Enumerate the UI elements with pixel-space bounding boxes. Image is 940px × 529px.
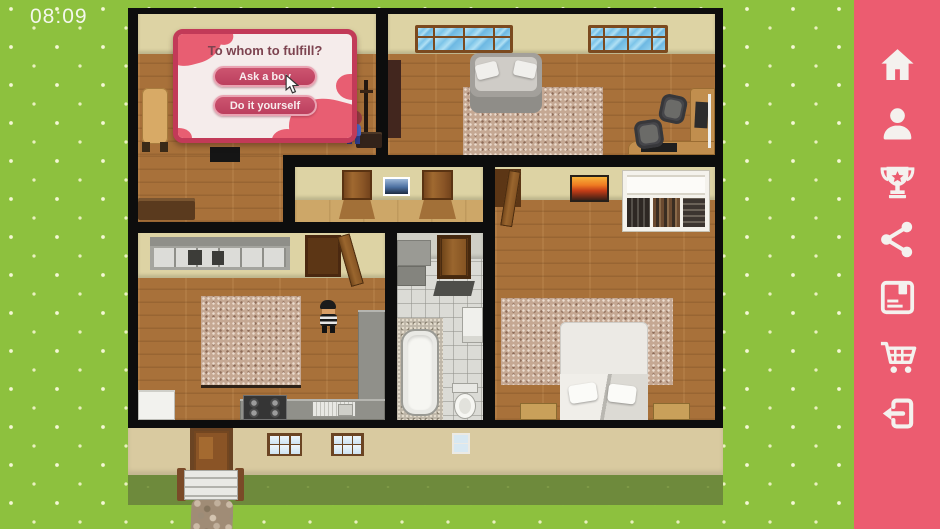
dialog-blob (336, 74, 357, 100)
bathroom-door (441, 238, 467, 276)
wardrobe-shelf (627, 175, 705, 195)
stone-path (190, 498, 233, 529)
living-room-window (415, 25, 513, 53)
profile-button[interactable] (875, 102, 919, 145)
mouse-cursor (284, 74, 300, 94)
nightstand (520, 403, 557, 420)
bed-pillow (607, 383, 637, 404)
front-door-panel (199, 437, 213, 459)
character-boy[interactable] (316, 300, 340, 338)
study-room-lower (138, 155, 283, 222)
facade-window (267, 433, 302, 456)
save-button[interactable] (875, 276, 919, 319)
exit-button[interactable] (875, 392, 919, 435)
study-desk-leg (160, 142, 168, 152)
boy-hat (320, 300, 336, 309)
game-timer: 08:09 (30, 5, 88, 29)
coat-rack-arm (360, 90, 373, 93)
do-it-yourself-button[interactable]: Do it yourself (213, 95, 317, 116)
dialog-title: To whom to fulfill? (208, 43, 323, 58)
save-icon (877, 277, 918, 318)
wardrobe (622, 170, 710, 232)
kitchen-sink (312, 401, 356, 417)
kitchen-rug (201, 296, 301, 388)
exit-icon (877, 393, 918, 434)
kitchen-door-opening (305, 235, 341, 277)
toilet-tank (452, 383, 478, 393)
game-sidebar (854, 0, 940, 529)
bed (560, 322, 648, 420)
dialog-blob (173, 128, 192, 143)
stove (243, 395, 287, 420)
share-button[interactable] (875, 218, 919, 261)
bathroom-sink (462, 307, 483, 343)
hallway-doorway-left (342, 170, 372, 200)
doorway-threshold (339, 200, 375, 219)
share-icon (877, 219, 918, 260)
boy-legs (322, 326, 335, 333)
couch (470, 53, 542, 113)
bathroom (397, 233, 483, 420)
house-facade (128, 428, 723, 475)
front-door (190, 428, 233, 475)
home-icon (877, 45, 918, 86)
study-desk (142, 88, 168, 144)
task-dialog: To whom to fulfill? Ask a boy Do it your… (173, 29, 357, 143)
hallway (295, 167, 483, 222)
hallway-doorway-right (422, 170, 453, 200)
profile-icon (877, 103, 918, 144)
bathroom-cabinet-low (397, 266, 426, 286)
cart-icon (877, 335, 918, 376)
front-steps (184, 470, 238, 500)
dresser (138, 198, 195, 220)
home-button[interactable] (875, 44, 919, 87)
bedroom (495, 167, 715, 420)
bathroom-cabinet (397, 240, 431, 266)
bed-headboard (560, 322, 648, 377)
nightstand (653, 403, 690, 420)
fridge (138, 390, 175, 420)
office-chair (633, 118, 665, 150)
ask-a-boy-button[interactable]: Ask a boy (213, 66, 317, 87)
trophy-icon (877, 161, 918, 202)
bath-mat (433, 281, 475, 296)
living-room (388, 14, 715, 155)
shop-button[interactable] (875, 334, 919, 377)
desk-shelf-strip (708, 94, 711, 148)
living-room-window (588, 25, 668, 53)
bathtub (401, 329, 439, 416)
hallway-picture (383, 177, 410, 196)
toilet (454, 393, 476, 419)
computer-monitor (694, 102, 708, 129)
bookshelf (388, 60, 401, 138)
kitchen (138, 233, 385, 420)
office-chair (657, 93, 688, 126)
facade-small-window (452, 433, 470, 454)
doorway-threshold (419, 200, 456, 219)
facade-window (331, 433, 364, 456)
achievements-button[interactable] (875, 160, 919, 203)
study-desk-leg (142, 142, 150, 152)
game-screen: 08:09 (0, 0, 940, 529)
wardrobe-clothes (627, 198, 705, 227)
boy-body (320, 314, 337, 326)
tv-console (210, 147, 240, 162)
kitchen-cabinet (150, 237, 290, 270)
sunset-painting (570, 175, 609, 202)
